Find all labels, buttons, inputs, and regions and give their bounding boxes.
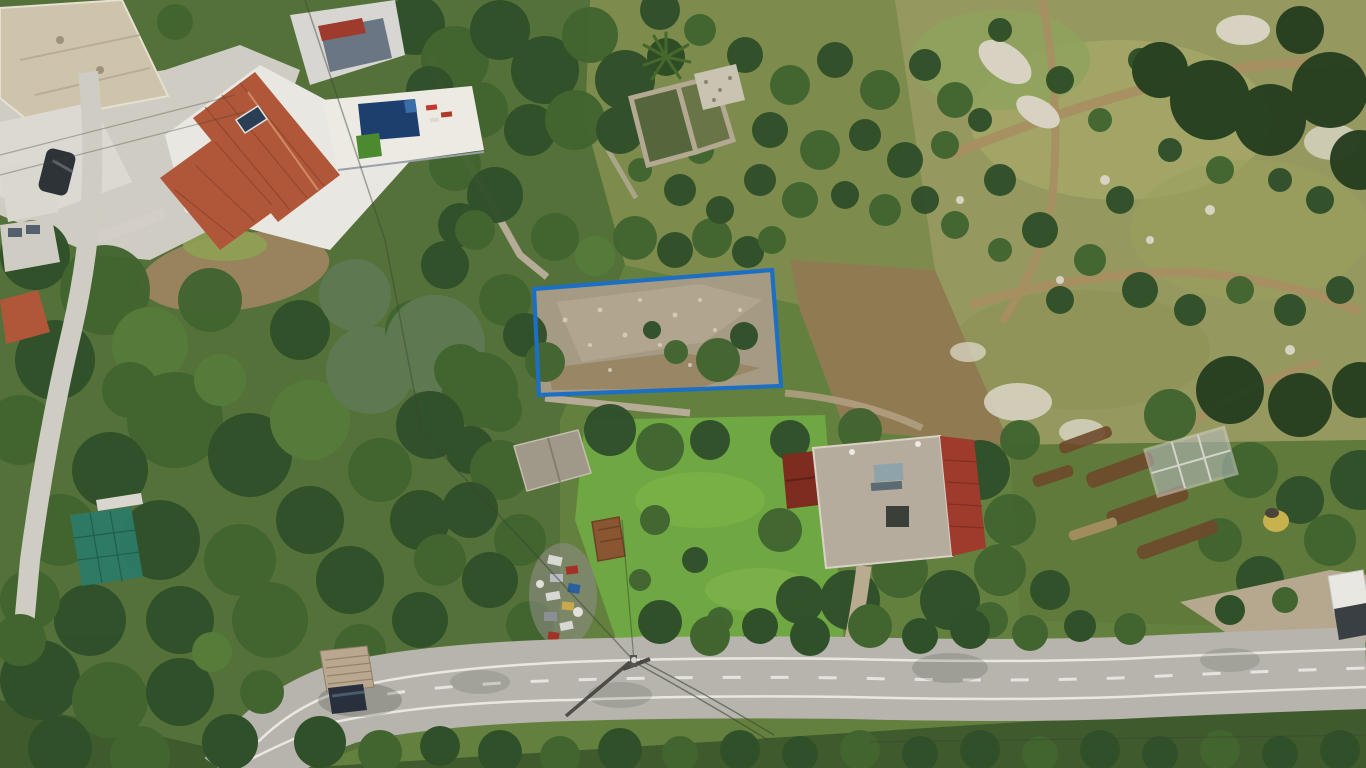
rusty-shed: [592, 517, 625, 561]
aerial-photo: Aerial drone photograph of a Mediterrane…: [0, 0, 1366, 768]
solar-water-heater: [873, 463, 903, 482]
pickup-bed: [1334, 603, 1366, 640]
aerial-photo-canvas: [0, 0, 1366, 768]
truck-cab: [328, 684, 367, 714]
pool-highlight: [404, 99, 417, 113]
roof-hatch: [886, 506, 909, 527]
lawn-patch: [356, 133, 382, 159]
flat-concrete-roof: [813, 436, 952, 568]
